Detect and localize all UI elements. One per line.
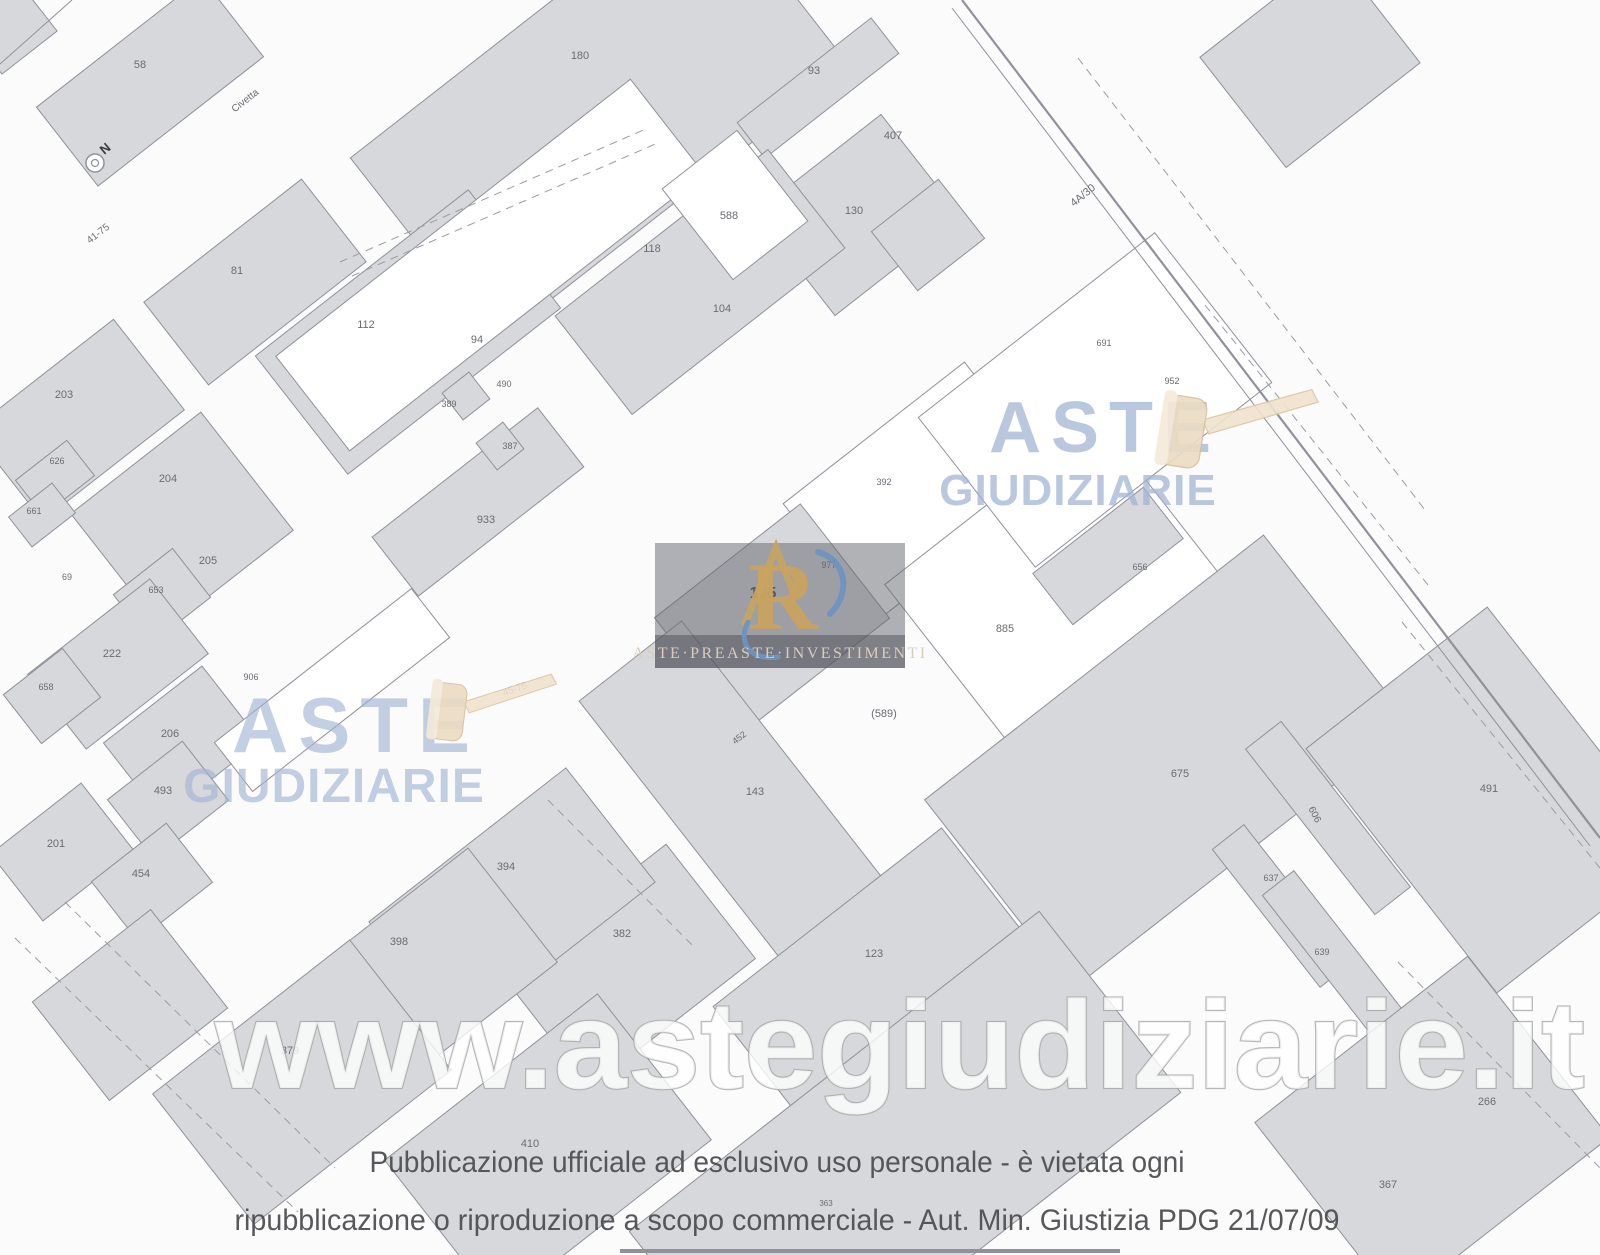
parcel-label: 389 [441, 399, 456, 409]
parcel-label: 394 [497, 861, 515, 873]
parcel-label: 639 [1314, 947, 1329, 957]
parcel-label: 398 [390, 936, 408, 948]
parcel-label: 94 [471, 334, 483, 346]
parcel-label: 112 [357, 319, 375, 331]
parcel-label: 454 [132, 868, 150, 880]
parcel-label: 490 [496, 379, 511, 389]
parcel-label: 203 [55, 389, 73, 401]
cadastral-map: 58Civetta41-7581112943894903879331809340… [0, 0, 1600, 1255]
cadastral-map-page: 58Civetta41-7581112943894903879331809340… [0, 0, 1600, 1255]
parcel-label: 222 [103, 648, 121, 660]
parcel-label: 69 [62, 572, 72, 582]
parcel-label: 201 [47, 838, 65, 850]
footer-line-1: Pubblicazione ufficiale ad esclusivo uso… [370, 1146, 1185, 1179]
parcel-label: 491 [1480, 783, 1498, 795]
parcel-label: 952 [1164, 376, 1179, 386]
parcel-label: 493 [154, 785, 172, 797]
parcel-label: 387 [502, 441, 517, 451]
north-point-outer [86, 154, 104, 172]
parcel-label: 367 [1379, 1179, 1397, 1191]
parcel-label: 658 [38, 682, 53, 692]
parcel-label: 81 [231, 265, 243, 277]
watermark-site-url: www.astegiudiziarie.it [214, 976, 1585, 1115]
parcel-label: 933 [477, 514, 495, 526]
parcel-label: 691 [1096, 338, 1111, 348]
parcel-label: 118 [643, 243, 661, 255]
logo-caption: ASTE·PREASTE·INVESTIMENTI [632, 645, 927, 662]
parcel-label: (589) [871, 708, 897, 720]
parcel-label: 656 [1132, 562, 1147, 572]
parcel-label: 588 [720, 210, 738, 222]
parcel-label: 123 [865, 948, 883, 960]
parcel-label: 637 [1263, 873, 1278, 883]
parcel-label: 58 [134, 59, 146, 71]
parcel-label: 653 [148, 585, 163, 595]
agency-logo: R ASTE·PREASTE·INVESTIMENTI [632, 543, 927, 668]
parcel-label: 204 [159, 473, 177, 485]
parcel-label: 661 [26, 506, 41, 516]
watermark-aste-right-line2: GIUDIZIARIE [939, 466, 1216, 515]
parcel-label: 143 [746, 786, 764, 798]
parcel-label: 407 [884, 130, 902, 142]
footer-line-2: ripubblicazione o riproduzione a scopo c… [235, 1204, 1340, 1237]
parcel-label: 675 [1171, 768, 1189, 780]
parcel-label: 206 [161, 728, 179, 740]
parcel-label: 392 [876, 477, 891, 487]
parcel-label: 104 [713, 303, 731, 315]
parcel-label: 382 [613, 928, 631, 940]
parcel-label: 180 [571, 50, 589, 62]
parcel-label: 130 [845, 205, 863, 217]
parcel-label: 626 [49, 456, 64, 466]
parcel-label: 93 [808, 65, 820, 77]
watermark-aste-left-line2: GIUDIZIARIE [183, 760, 485, 813]
parcel-label: 885 [996, 623, 1014, 635]
parcel-label: 205 [199, 555, 217, 567]
